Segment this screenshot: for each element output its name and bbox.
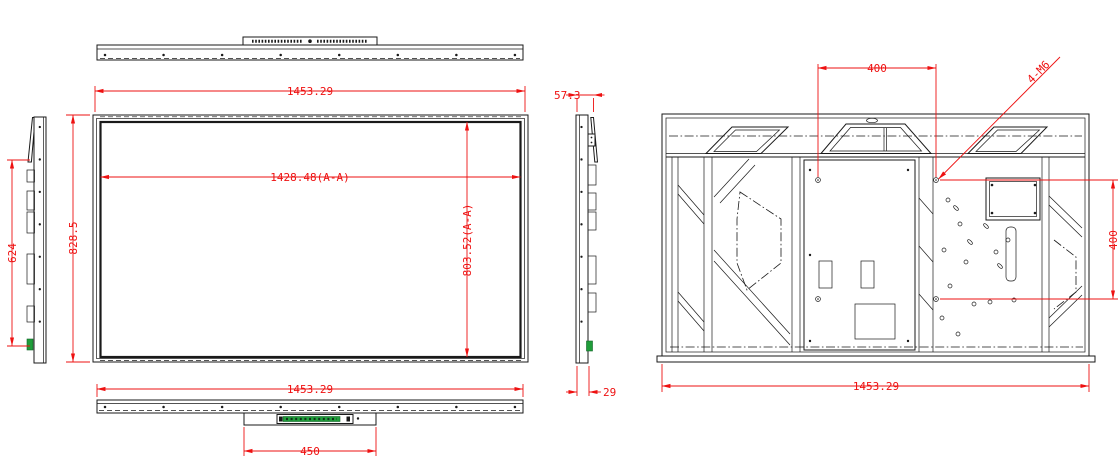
rear-outer-frame (662, 114, 1089, 356)
left-port-blocks (27, 170, 35, 322)
side-top-port (588, 134, 595, 146)
front-active-width-label: 1428.48(A-A) (270, 171, 349, 184)
right-side-view (576, 115, 598, 363)
left-body (34, 117, 46, 363)
front-overall-height-label: 828.5 (67, 221, 80, 254)
dim-bottom-overall-width: 1453.29 (97, 383, 523, 397)
top-view (97, 37, 523, 60)
side-top-port-pin2 (591, 142, 593, 144)
rear-vesa-height-label: 400 (1107, 230, 1120, 250)
side-overall-depth-label: 57.3 (554, 89, 581, 102)
dim-side-overall-depth: 57.3 (554, 89, 605, 112)
bottom-housing (97, 400, 523, 413)
bottom-module-screw (357, 417, 359, 419)
top-housing (97, 45, 523, 60)
dim-left-port-zone-height: 624 (6, 160, 30, 346)
bottom-view (97, 400, 523, 425)
left-side-view (27, 117, 46, 363)
rear-view (657, 114, 1095, 362)
dim-front-overall-width: 1453.29 (95, 85, 525, 112)
front-active-height-label: 803.52(A-A) (461, 204, 474, 277)
rear-base-strip (657, 356, 1095, 362)
left-power-connector (27, 339, 33, 350)
rear-mount-screws-label: 4-M6 (1025, 58, 1053, 86)
dim-rear-overall-width: 1453.29 (662, 364, 1089, 393)
side-body-depth-label: 29 (603, 386, 616, 399)
dim-bottom-module-width: 450 (244, 427, 376, 458)
top-module-lens (308, 39, 312, 43)
rear-overall-width-label: 1453.29 (853, 380, 899, 393)
bottom-module-width-label: 450 (300, 445, 320, 458)
engineering-drawing-sheet: 1453.29 828.5 1428.48(A-A) 803.52(A-A) 1… (0, 0, 1120, 462)
dim-side-body-depth: 29 (566, 366, 616, 399)
bottom-overall-width-label: 1453.29 (287, 383, 333, 396)
bottom-connector-end-left (279, 417, 283, 422)
front-overall-width-label: 1453.29 (287, 85, 333, 98)
drawing-canvas: 1453.29 828.5 1428.48(A-A) 803.52(A-A) 1… (0, 0, 1120, 462)
left-port-zone-height-label: 624 (6, 243, 19, 263)
side-port-blocks (588, 165, 596, 312)
side-body (576, 115, 588, 363)
side-power-connector (587, 341, 593, 351)
side-top-port-pin1 (591, 137, 593, 139)
rear-vesa-width-label: 400 (867, 62, 887, 75)
dim-front-overall-height: 828.5 (66, 115, 90, 362)
bottom-connector-end-right (347, 417, 351, 422)
